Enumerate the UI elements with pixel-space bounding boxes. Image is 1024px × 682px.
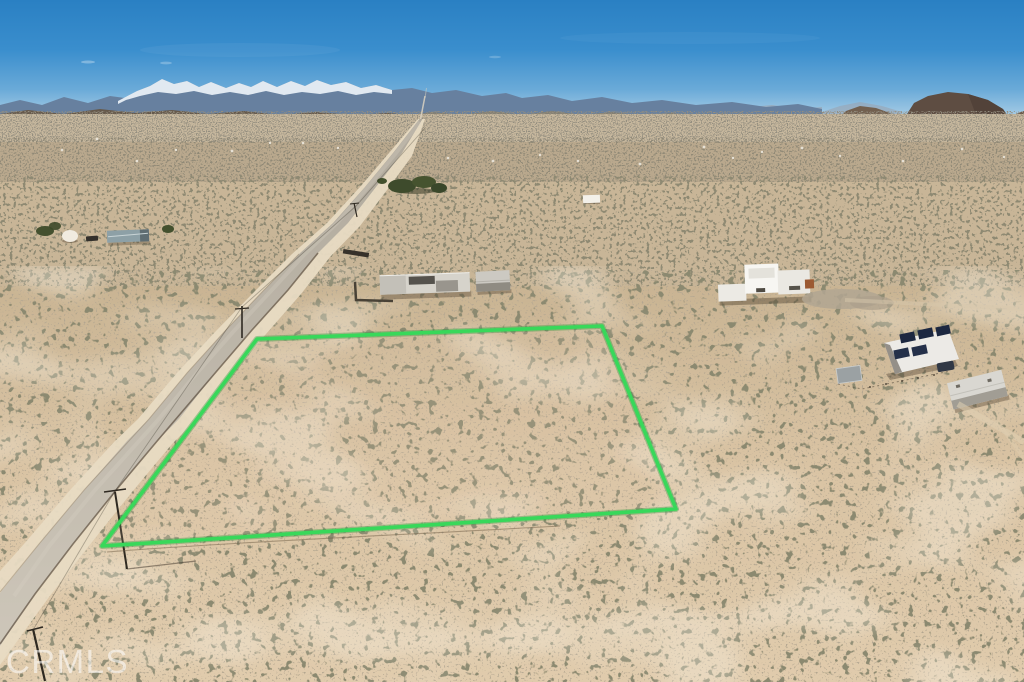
tree	[388, 179, 416, 193]
scene-canvas	[0, 0, 1024, 682]
cloud-wisp	[140, 43, 340, 57]
roof-dark-panel	[409, 276, 435, 285]
window-band	[789, 286, 800, 290]
tree	[431, 183, 447, 193]
aerial-desert-listing-photo: CRMLS	[0, 0, 1024, 682]
cloud-wisp	[560, 32, 820, 44]
desert-band-far	[0, 114, 1024, 144]
window-band	[756, 288, 765, 292]
small-cloud	[81, 61, 95, 64]
roof-left-section	[380, 275, 407, 295]
crmls-watermark: CRMLS	[6, 642, 129, 682]
small-cloud	[160, 62, 172, 65]
carport-shade	[436, 280, 458, 292]
parked-vehicle	[86, 236, 98, 242]
tree	[162, 225, 174, 233]
desert-band-mid2	[0, 182, 1024, 290]
rust-colored-object	[805, 279, 814, 288]
trailer-body	[583, 195, 600, 204]
small-cloud	[489, 56, 501, 59]
white-trailer	[583, 195, 600, 204]
building-dark-end	[140, 229, 149, 241]
roof-inset	[748, 268, 774, 279]
concrete-pad	[836, 365, 862, 383]
desert-band-mid	[0, 142, 1024, 184]
white-dome-structure	[62, 230, 78, 242]
tree	[49, 222, 61, 230]
house-volume-left	[718, 284, 747, 302]
